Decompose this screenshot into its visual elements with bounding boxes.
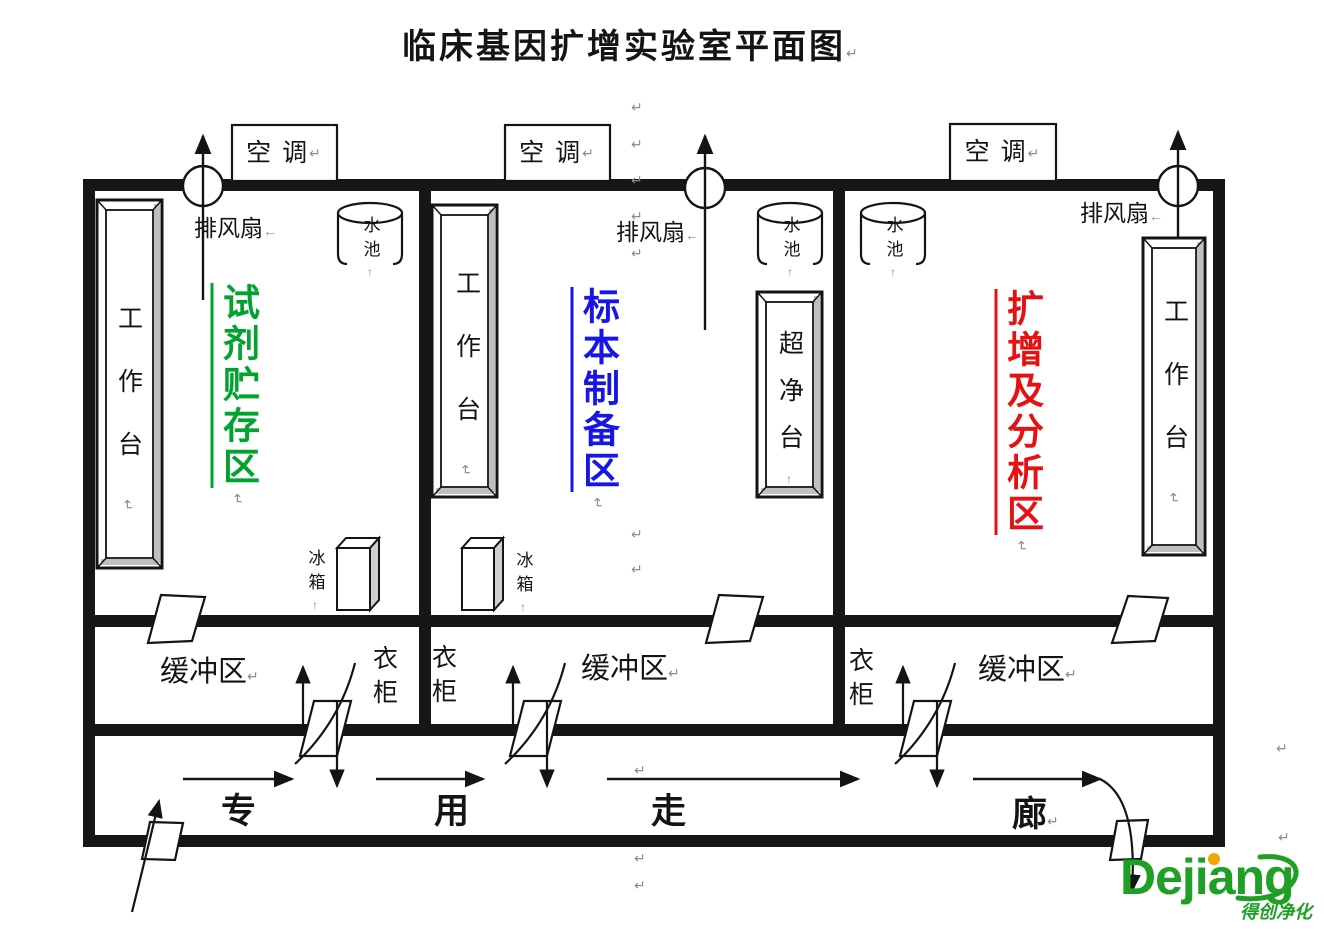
paragraph-mark-icon: ↵: [668, 665, 680, 681]
up-arrow-mark-icon: ↑: [520, 601, 526, 613]
paragraph-mark-icon: ↵: [1028, 146, 1042, 160]
up-arrow-mark-icon: ↑: [890, 266, 896, 278]
workbench-label-2: 工作台 ↵: [451, 270, 481, 477]
paragraph-mark-icon: ↵: [247, 668, 259, 684]
workbench-label-1: 工作台 ↵: [113, 305, 143, 512]
wardrobe-label-3: 衣柜: [844, 647, 874, 715]
sink-label-2: 水池 ↑: [776, 216, 804, 278]
buffer-zone-label-3: 缓冲区↵: [978, 656, 1077, 685]
paragraph-mark-icon: ↵: [121, 499, 135, 511]
paragraph-mark-icon: ↵: [1015, 540, 1029, 552]
exhaust-fan-label-3: 排风扇←: [1080, 202, 1163, 225]
corridor-char-1: 专: [221, 794, 256, 829]
zone-label-specimen-prep: 标本制备区 ↵: [577, 287, 619, 510]
paragraph-mark-icon: ↵: [631, 246, 643, 260]
ac-label-1: 空 调↵: [232, 125, 337, 181]
zone-label-amplification-analysis: 扩增及分析区 ↵: [1001, 289, 1043, 553]
left-arrow-mark-icon: ←: [263, 223, 277, 239]
ac-label-3: 空 调↵: [950, 124, 1056, 181]
corridor-char-4: 廊↵: [1012, 797, 1059, 832]
paragraph-mark-icon: ↵: [1278, 830, 1290, 844]
paragraph-mark-icon: ↵: [634, 878, 646, 892]
ac-label-2: 空 调↵: [505, 125, 610, 181]
paragraph-mark-icon: ↵: [309, 146, 323, 160]
left-arrow-mark-icon: ←: [685, 227, 699, 243]
clean-bench-label: 超净台 ↑: [774, 330, 804, 485]
walls: [83, 179, 1225, 847]
buffer-door-2: [505, 663, 565, 786]
paragraph-mark-icon: ↵: [631, 209, 643, 223]
workbench-label-3: 工作台 ↵: [1159, 298, 1189, 505]
wall-rooms-buffer: [83, 615, 1225, 627]
floor-plan-linework: [0, 0, 1324, 929]
corridor-char-3: 走: [651, 794, 686, 829]
logo-tagline: 得创净化: [1240, 903, 1312, 921]
paragraph-mark-icon: ↵: [634, 763, 646, 777]
door-room3-buffer: [1112, 596, 1168, 643]
up-arrow-mark-icon: ↑: [786, 473, 792, 485]
paragraph-mark-icon: ↵: [1276, 741, 1288, 755]
fridge-2-symbol: [462, 538, 503, 610]
door-room2-buffer: [706, 595, 763, 643]
buffer-door-3: [895, 663, 955, 786]
floor-plan: 临床基因扩增实验室平面图↵ 空 调↵ 空 调↵ 空 调↵ 排风扇← 排风扇← 排…: [0, 0, 1324, 929]
left-arrow-mark-icon: ←: [1149, 208, 1163, 224]
buffer-door-1: [295, 663, 355, 786]
ac-boxes: [232, 124, 1056, 181]
entrance-door: [132, 801, 183, 912]
exhaust-fan-label-2: 排风扇←: [616, 221, 699, 244]
up-arrow-mark-icon: ↑: [367, 266, 373, 278]
paragraph-mark-icon: ↵: [634, 851, 646, 865]
wall-bottom: [83, 835, 1225, 847]
paragraph-mark-icon: ↵: [231, 493, 245, 505]
door-leaf: [142, 822, 183, 860]
wall-right: [1213, 179, 1225, 847]
wardrobe-label-2: 衣柜: [427, 644, 457, 712]
fridge-1-symbol: [337, 538, 379, 610]
buffer-zone-label-2: 缓冲区↵: [581, 655, 680, 684]
paragraph-mark-icon: ↵: [631, 137, 643, 151]
paragraph-mark-icon: ↵: [631, 527, 643, 541]
page-title: 临床基因扩增实验室平面图↵: [402, 30, 861, 64]
paragraph-mark-icon: ↵: [631, 562, 643, 576]
paragraph-mark-icon: ↵: [582, 146, 596, 160]
sink-label-1: 水池 ↑: [356, 216, 384, 278]
paragraph-mark-icon: ↵: [631, 173, 643, 187]
paragraph-mark-icon: ↵: [1047, 813, 1059, 829]
wardrobe-label-1: 衣柜: [368, 645, 398, 713]
corridor-char-2: 用: [434, 794, 469, 829]
fridge-label-2: 冰箱 ↑: [509, 551, 537, 613]
paragraph-mark-icon: ↵: [459, 464, 473, 476]
wall-buffer-corridor: [83, 724, 1225, 736]
paragraph-mark-icon: ↵: [591, 497, 605, 509]
sink-label-3: 水池 ↑: [879, 216, 907, 278]
exhaust-fan-label-1: 排风扇←: [194, 217, 277, 240]
up-arrow-mark-icon: ↑: [787, 266, 793, 278]
zone-label-reagent-storage: 试剂贮存区 ↵: [217, 283, 259, 506]
up-arrow-mark-icon: ↑: [312, 599, 318, 611]
paragraph-mark-icon: ↵: [1167, 492, 1181, 504]
buffer-zone-label-1: 缓冲区↵: [160, 658, 259, 687]
paragraph-mark-icon: ↵: [846, 45, 861, 61]
paragraph-mark-icon: ↵: [631, 100, 643, 114]
paragraph-mark-icon: ↵: [1065, 666, 1077, 682]
door-room1-buffer: [148, 595, 205, 643]
fridge-label-1: 冰箱 ↑: [301, 549, 329, 611]
logo-brand: Dejiang: [1120, 852, 1294, 902]
wall-left: [83, 179, 95, 847]
logo-dot-icon: [1208, 853, 1220, 865]
